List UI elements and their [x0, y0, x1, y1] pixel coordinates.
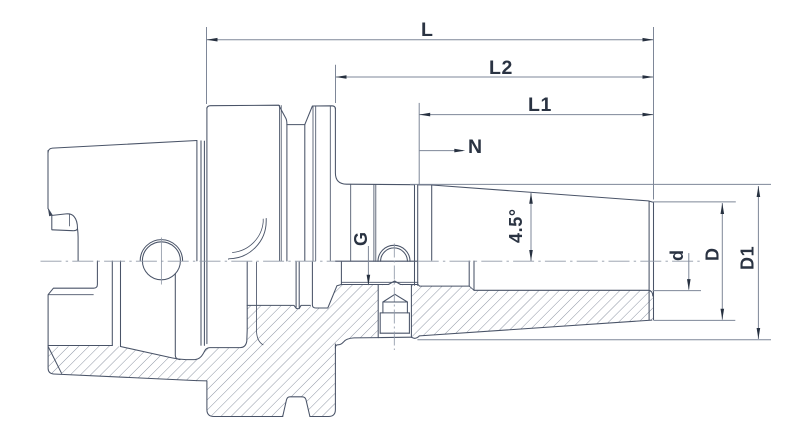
svg-text:D1: D1: [738, 246, 758, 270]
svg-text:4.5°: 4.5°: [506, 208, 526, 243]
svg-text:d: d: [667, 249, 687, 261]
svg-text:D: D: [703, 247, 723, 261]
svg-text:G: G: [351, 231, 371, 246]
svg-text:L: L: [421, 19, 434, 41]
svg-text:L1: L1: [528, 94, 552, 116]
svg-text:N: N: [468, 136, 483, 158]
svg-text:L2: L2: [489, 57, 513, 79]
